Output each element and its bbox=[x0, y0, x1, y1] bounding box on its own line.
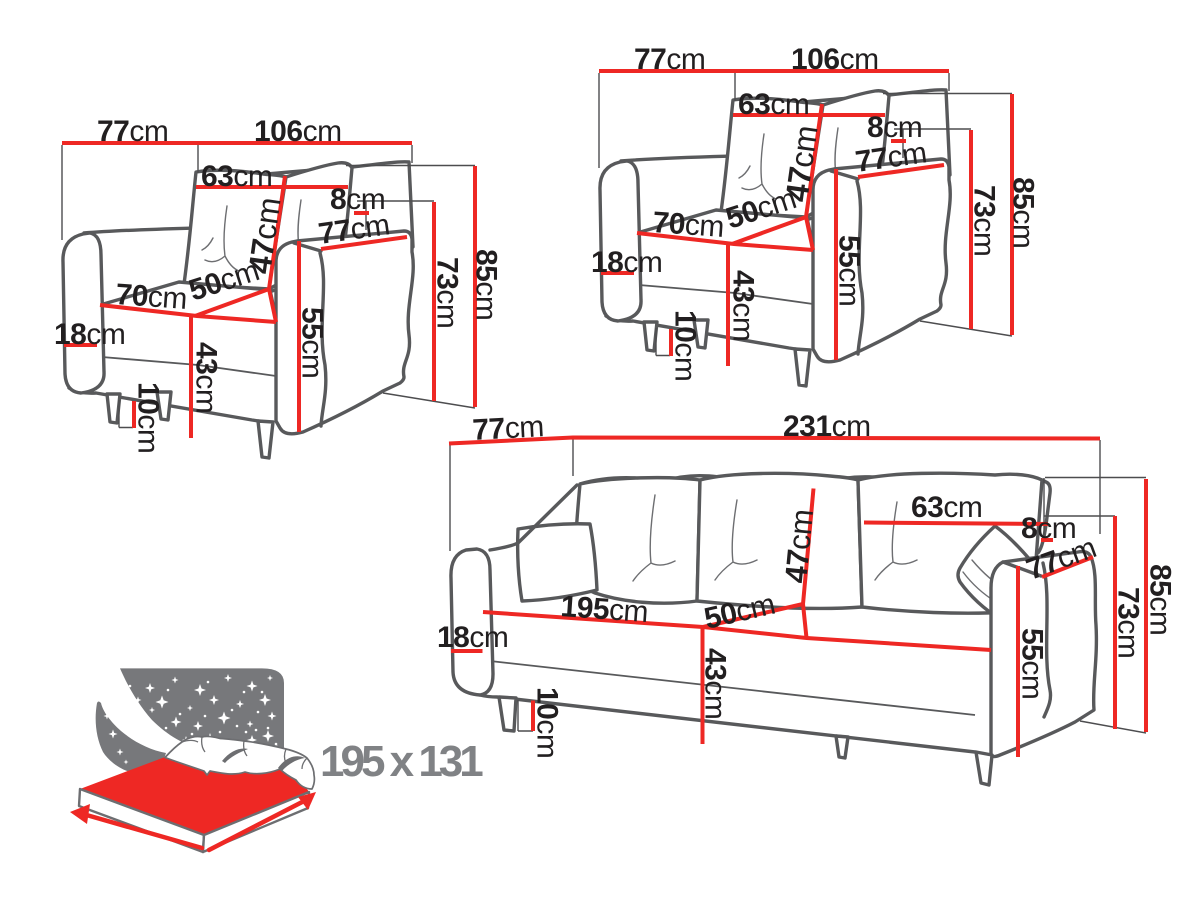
svg-text:77cm: 77cm bbox=[472, 410, 545, 447]
svg-text:195cm: 195cm bbox=[560, 590, 650, 629]
svg-text:18cm: 18cm bbox=[437, 621, 508, 654]
svg-text:47cm: 47cm bbox=[778, 508, 820, 585]
svg-text:231cm: 231cm bbox=[783, 410, 871, 443]
svg-text:55cm: 55cm bbox=[1016, 628, 1049, 699]
svg-text:43cm: 43cm bbox=[699, 648, 732, 719]
svg-text:85cm: 85cm bbox=[1144, 564, 1177, 635]
svg-text:73cm: 73cm bbox=[1112, 587, 1145, 658]
svg-text:10cm: 10cm bbox=[531, 687, 564, 758]
svg-text:63cm: 63cm bbox=[911, 491, 982, 524]
svg-text:195 x 131: 195 x 131 bbox=[320, 737, 483, 786]
